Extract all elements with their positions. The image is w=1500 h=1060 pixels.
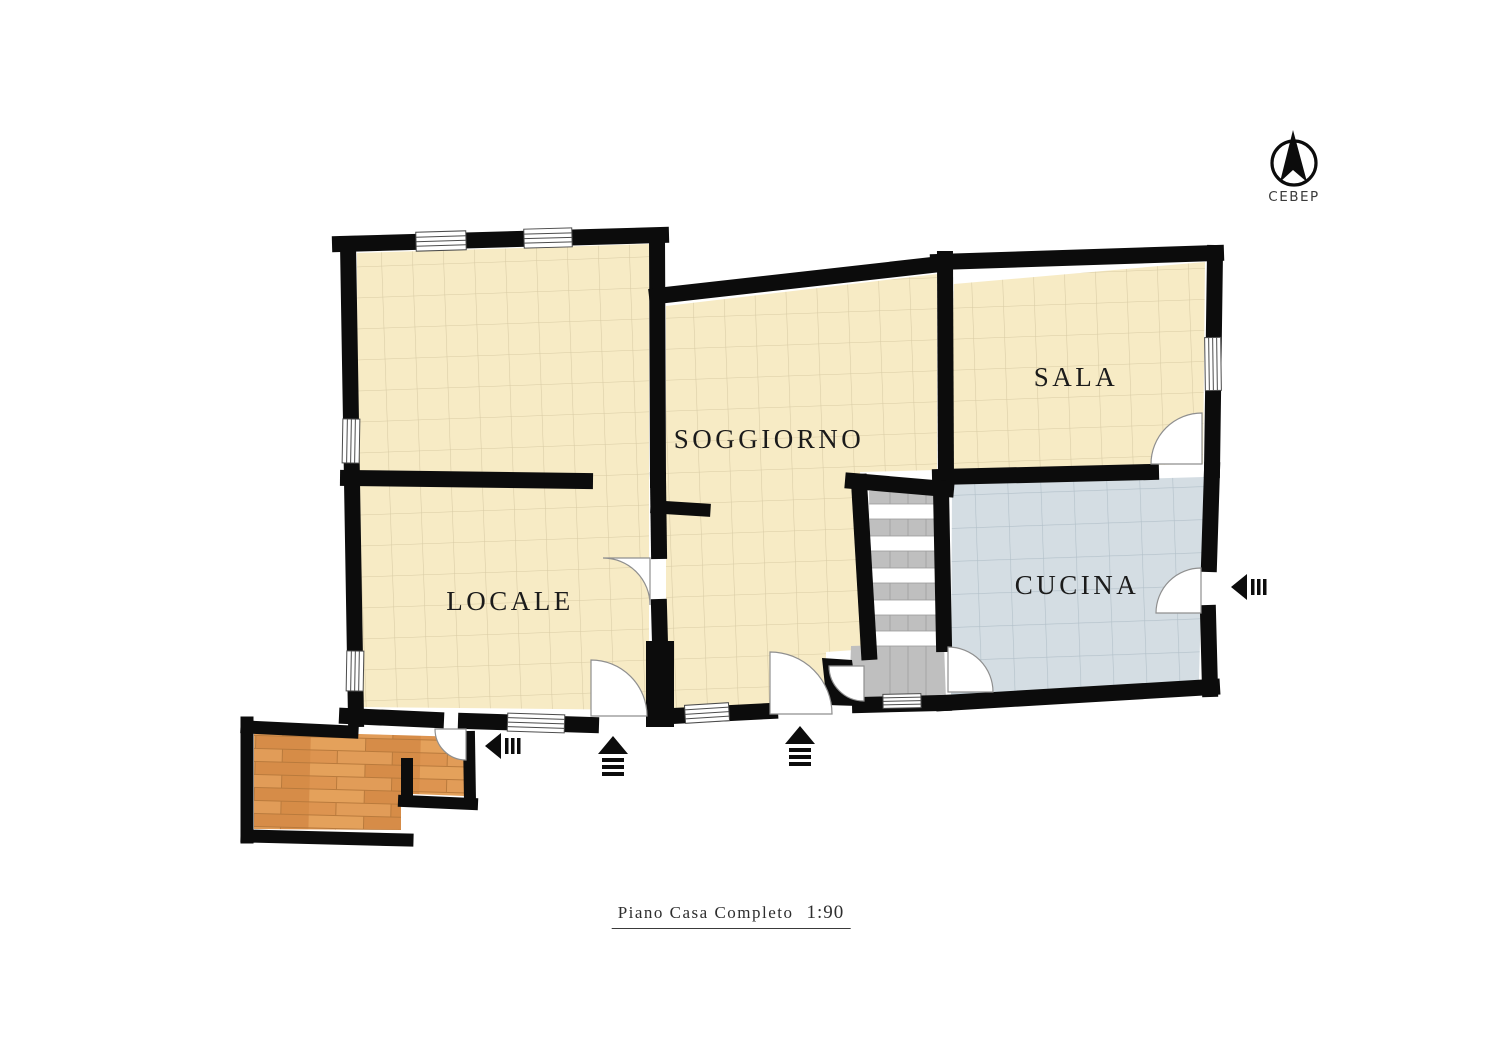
wall	[1209, 470, 1212, 564]
floor-plan-canvas: SOGGIORNO SALA LOCALE CUCINA СЕВЕР	[0, 0, 1500, 1060]
window	[507, 713, 565, 733]
wall	[659, 607, 660, 643]
wall	[347, 716, 436, 720]
floors	[254, 244, 1205, 830]
wall	[945, 259, 946, 482]
wall	[657, 507, 704, 510]
wall	[247, 836, 407, 840]
wall	[404, 801, 472, 804]
wall	[941, 489, 944, 644]
entry-arrow-left-icon	[485, 733, 521, 759]
entry-arrow-up-icon	[785, 726, 815, 766]
room-label-sala: SALA	[1034, 362, 1119, 392]
wall	[940, 472, 1151, 477]
window	[524, 228, 573, 248]
entry-arrow-left-icon	[1231, 574, 1267, 600]
room-label-locale: LOCALE	[446, 586, 573, 616]
wall	[938, 253, 1216, 262]
wall	[859, 482, 869, 652]
window	[684, 703, 729, 724]
plan-title-block: Piano Casa Completo 1:90	[612, 902, 851, 929]
north-arrow-sail	[1280, 130, 1307, 182]
wall	[340, 235, 661, 244]
room-label-cucina: CUCINA	[1015, 570, 1140, 600]
north-label: СЕВЕР	[1268, 189, 1319, 205]
window	[342, 419, 360, 463]
wall	[247, 727, 352, 732]
wall	[469, 737, 470, 801]
wall	[348, 478, 585, 481]
room-label-soggiorno: SOGGIORNO	[674, 424, 865, 454]
window	[346, 651, 364, 691]
north-indicator: СЕВЕР	[1268, 130, 1319, 205]
terrace-floor	[254, 731, 464, 830]
plan-scale: 1:90	[807, 902, 845, 924]
wall	[657, 236, 658, 480]
wall-pillar	[646, 641, 674, 727]
wall	[1208, 613, 1210, 689]
window	[1205, 337, 1222, 390]
window	[883, 694, 921, 709]
entry-arrow-up-icon	[598, 736, 628, 776]
plan-title: Piano Casa Completo	[618, 903, 794, 923]
window	[416, 231, 467, 251]
wall	[658, 480, 659, 551]
